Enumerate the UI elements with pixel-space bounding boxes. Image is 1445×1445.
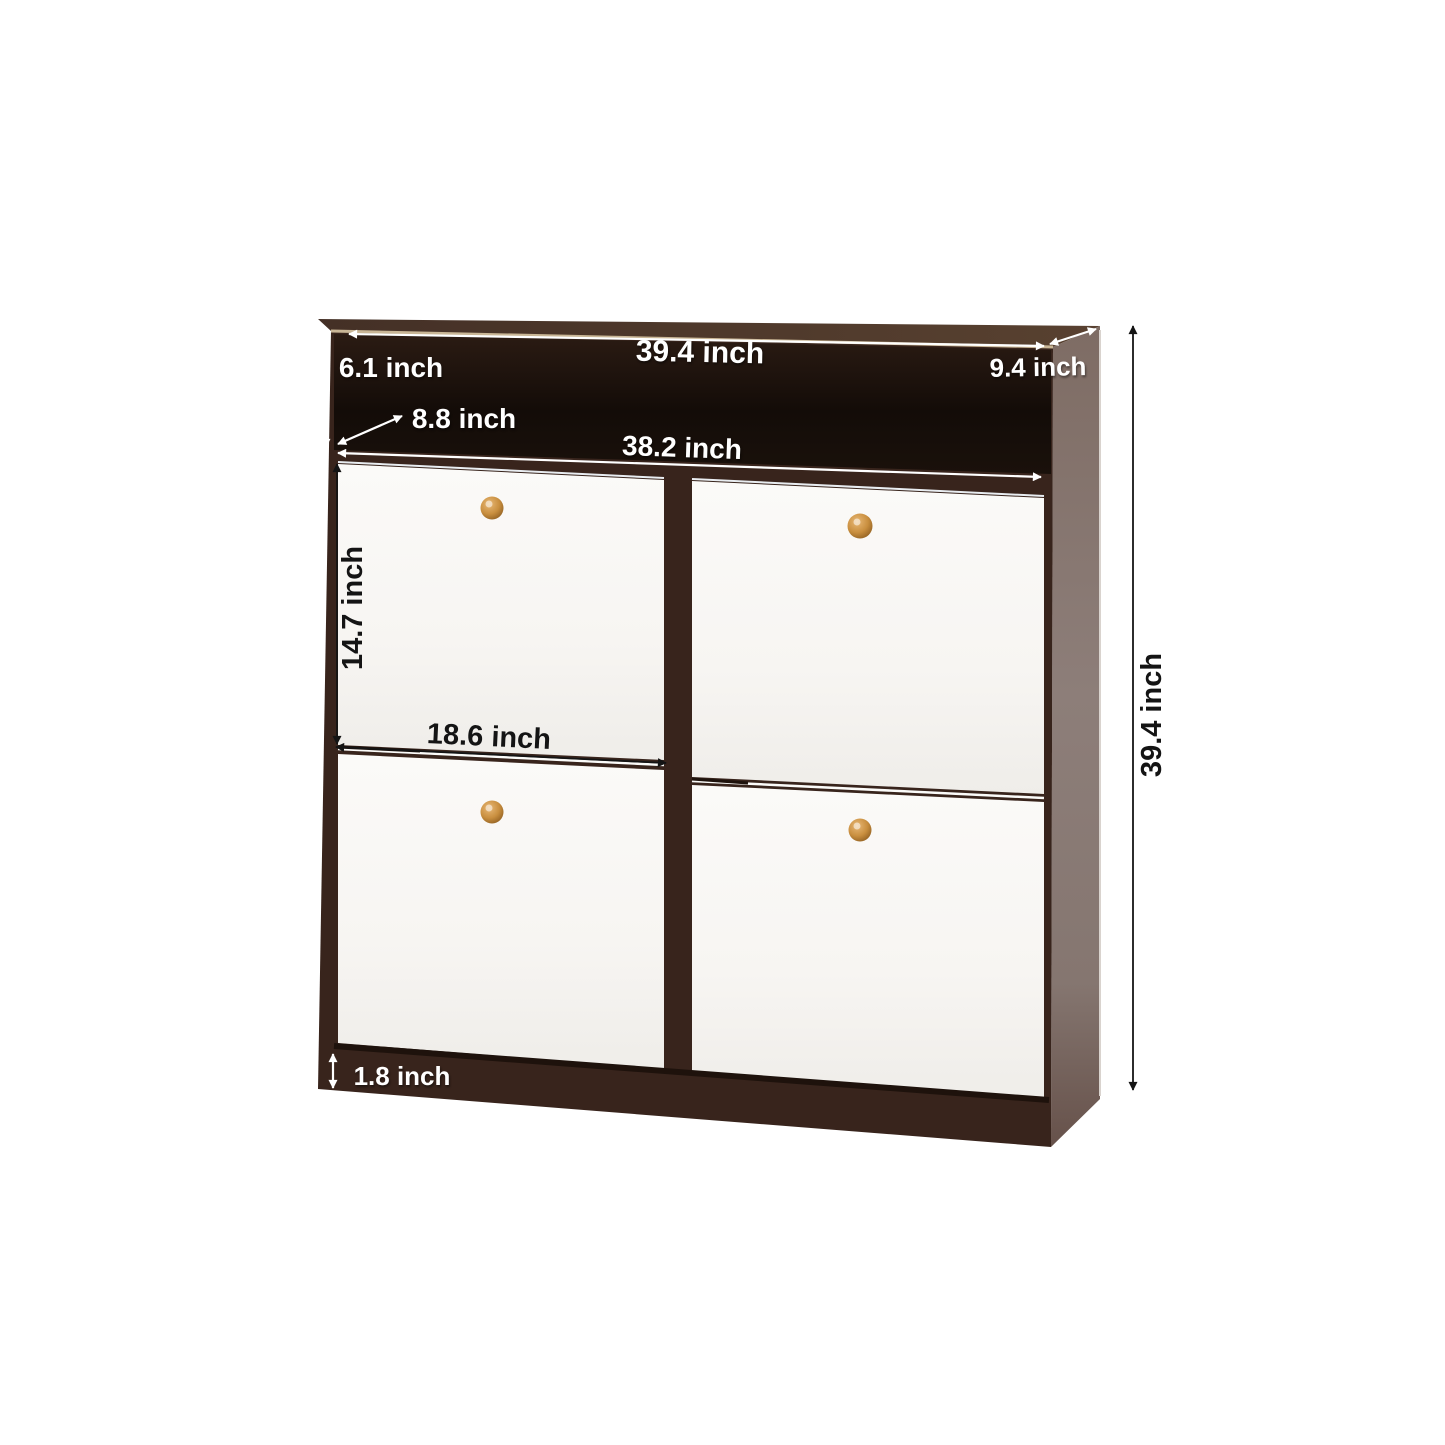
knob-top-right bbox=[848, 514, 873, 539]
knob-circle bbox=[848, 514, 873, 539]
knob-highlight bbox=[854, 823, 861, 830]
knob-bottom-right bbox=[849, 819, 872, 842]
knob-circle bbox=[481, 497, 504, 520]
knob-circle bbox=[849, 819, 872, 842]
dim-label-depth: 9.4 inch bbox=[989, 351, 1086, 383]
dim-label-door-width: 18.6 inch bbox=[426, 718, 552, 756]
knob-circle bbox=[481, 801, 504, 824]
dim-label-open-shelf-height: 6.1 inch bbox=[339, 352, 443, 383]
dim-label-base-height: 1.8 inch bbox=[354, 1061, 451, 1091]
dim-label-open-shelf-depth: 8.8 inch bbox=[412, 403, 516, 434]
dim-label-top-width: 39.4 inch bbox=[635, 335, 764, 371]
knob-top-left bbox=[481, 497, 504, 520]
product-diagram-canvas: 39.4 inch 9.4 inch 6.1 inch 8.8 inch 38.… bbox=[0, 0, 1445, 1445]
cabinet-side-panel bbox=[1051, 326, 1100, 1147]
knob-highlight bbox=[486, 501, 493, 508]
knob-highlight bbox=[854, 519, 861, 526]
dim-label-total-height: 39.4 inch bbox=[1136, 653, 1168, 777]
dim-label-door-height: 14.7 inch bbox=[337, 546, 369, 670]
knob-bottom-left bbox=[481, 801, 504, 824]
door-bottom-left bbox=[338, 754, 664, 1069]
dim-label-inner-width: 38.2 inch bbox=[622, 430, 743, 465]
knob-highlight bbox=[486, 805, 493, 812]
product-diagram-svg: 39.4 inch 9.4 inch 6.1 inch 8.8 inch 38.… bbox=[0, 0, 1445, 1445]
